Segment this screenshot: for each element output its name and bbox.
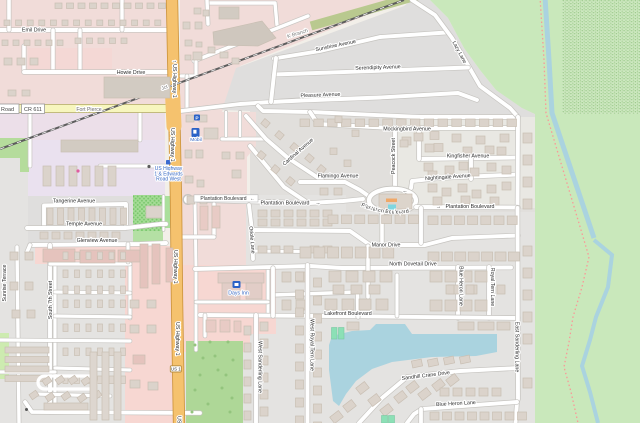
svg-text:→: → xyxy=(436,204,441,210)
svg-text:South 7th Street: South 7th Street xyxy=(48,280,54,319)
svg-text:West Sanderling Lane: West Sanderling Lane xyxy=(257,341,263,393)
svg-text:US 1: US 1 xyxy=(171,367,181,372)
svg-text:Emil Drive: Emil Drive xyxy=(22,28,46,34)
svg-text:CR 611: CR 611 xyxy=(24,107,42,113)
svg-text:Plantation Boulevard: Plantation Boulevard xyxy=(200,196,246,202)
svg-text:Plantation Boulevard: Plantation Boulevard xyxy=(261,200,310,206)
svg-text:Sunrise Terrace: Sunrise Terrace xyxy=(2,264,8,301)
svg-text:←: ← xyxy=(402,189,407,195)
svg-text:Fort Pierce: Fort Pierce xyxy=(76,107,101,113)
svg-text:Temple Avenue: Temple Avenue xyxy=(66,222,102,228)
svg-text:US Highway 1: US Highway 1 xyxy=(169,128,175,162)
svg-text:US Highway 1: US Highway 1 xyxy=(176,416,182,423)
svg-text:East Sanderling Lane: East Sanderling Lane xyxy=(514,322,520,373)
svg-text:US Highway 1: US Highway 1 xyxy=(174,322,180,356)
svg-text:Plantation Boulevard: Plantation Boulevard xyxy=(446,204,495,210)
svg-text:Howie Drive: Howie Drive xyxy=(117,70,146,76)
svg-text:→: → xyxy=(315,200,320,206)
svg-text:↑ US Highway 1: ↑ US Highway 1 xyxy=(171,60,177,98)
svg-text:Mobil: Mobil xyxy=(190,137,201,143)
svg-text:rds Road: rds Road xyxy=(0,107,14,113)
svg-text:Lakefront Boulevard: Lakefront Boulevard xyxy=(324,311,371,317)
svg-text:Mockingbird Avenue: Mockingbird Avenue xyxy=(383,127,431,133)
svg-text:Blue Heron Lane: Blue Heron Lane xyxy=(458,266,464,306)
svg-text:Manor Drive: Manor Drive xyxy=(372,243,401,249)
svg-text:US Highway 1: US Highway 1 xyxy=(172,250,178,284)
svg-text:Glenview Avenue: Glenview Avenue xyxy=(77,238,118,244)
svg-text:Kingfisher Avenue: Kingfisher Avenue xyxy=(447,154,490,160)
svg-text:Peacock Street: Peacock Street xyxy=(391,138,397,174)
svg-text:Tangerine Avenue: Tangerine Avenue xyxy=(53,199,95,205)
svg-text:West Royal Tern Lane: West Royal Tern Lane xyxy=(309,319,315,371)
svg-text:←: ← xyxy=(250,196,255,202)
svg-text:Days Inn: Days Inn xyxy=(228,291,249,297)
svg-text:Road West: Road West xyxy=(156,177,181,183)
svg-text:Flamingo Avenue: Flamingo Avenue xyxy=(318,174,359,180)
svg-text:Royal Tern Lane: Royal Tern Lane xyxy=(489,268,495,307)
svg-text:North Dovetail Drive: North Dovetail Drive xyxy=(389,262,436,268)
